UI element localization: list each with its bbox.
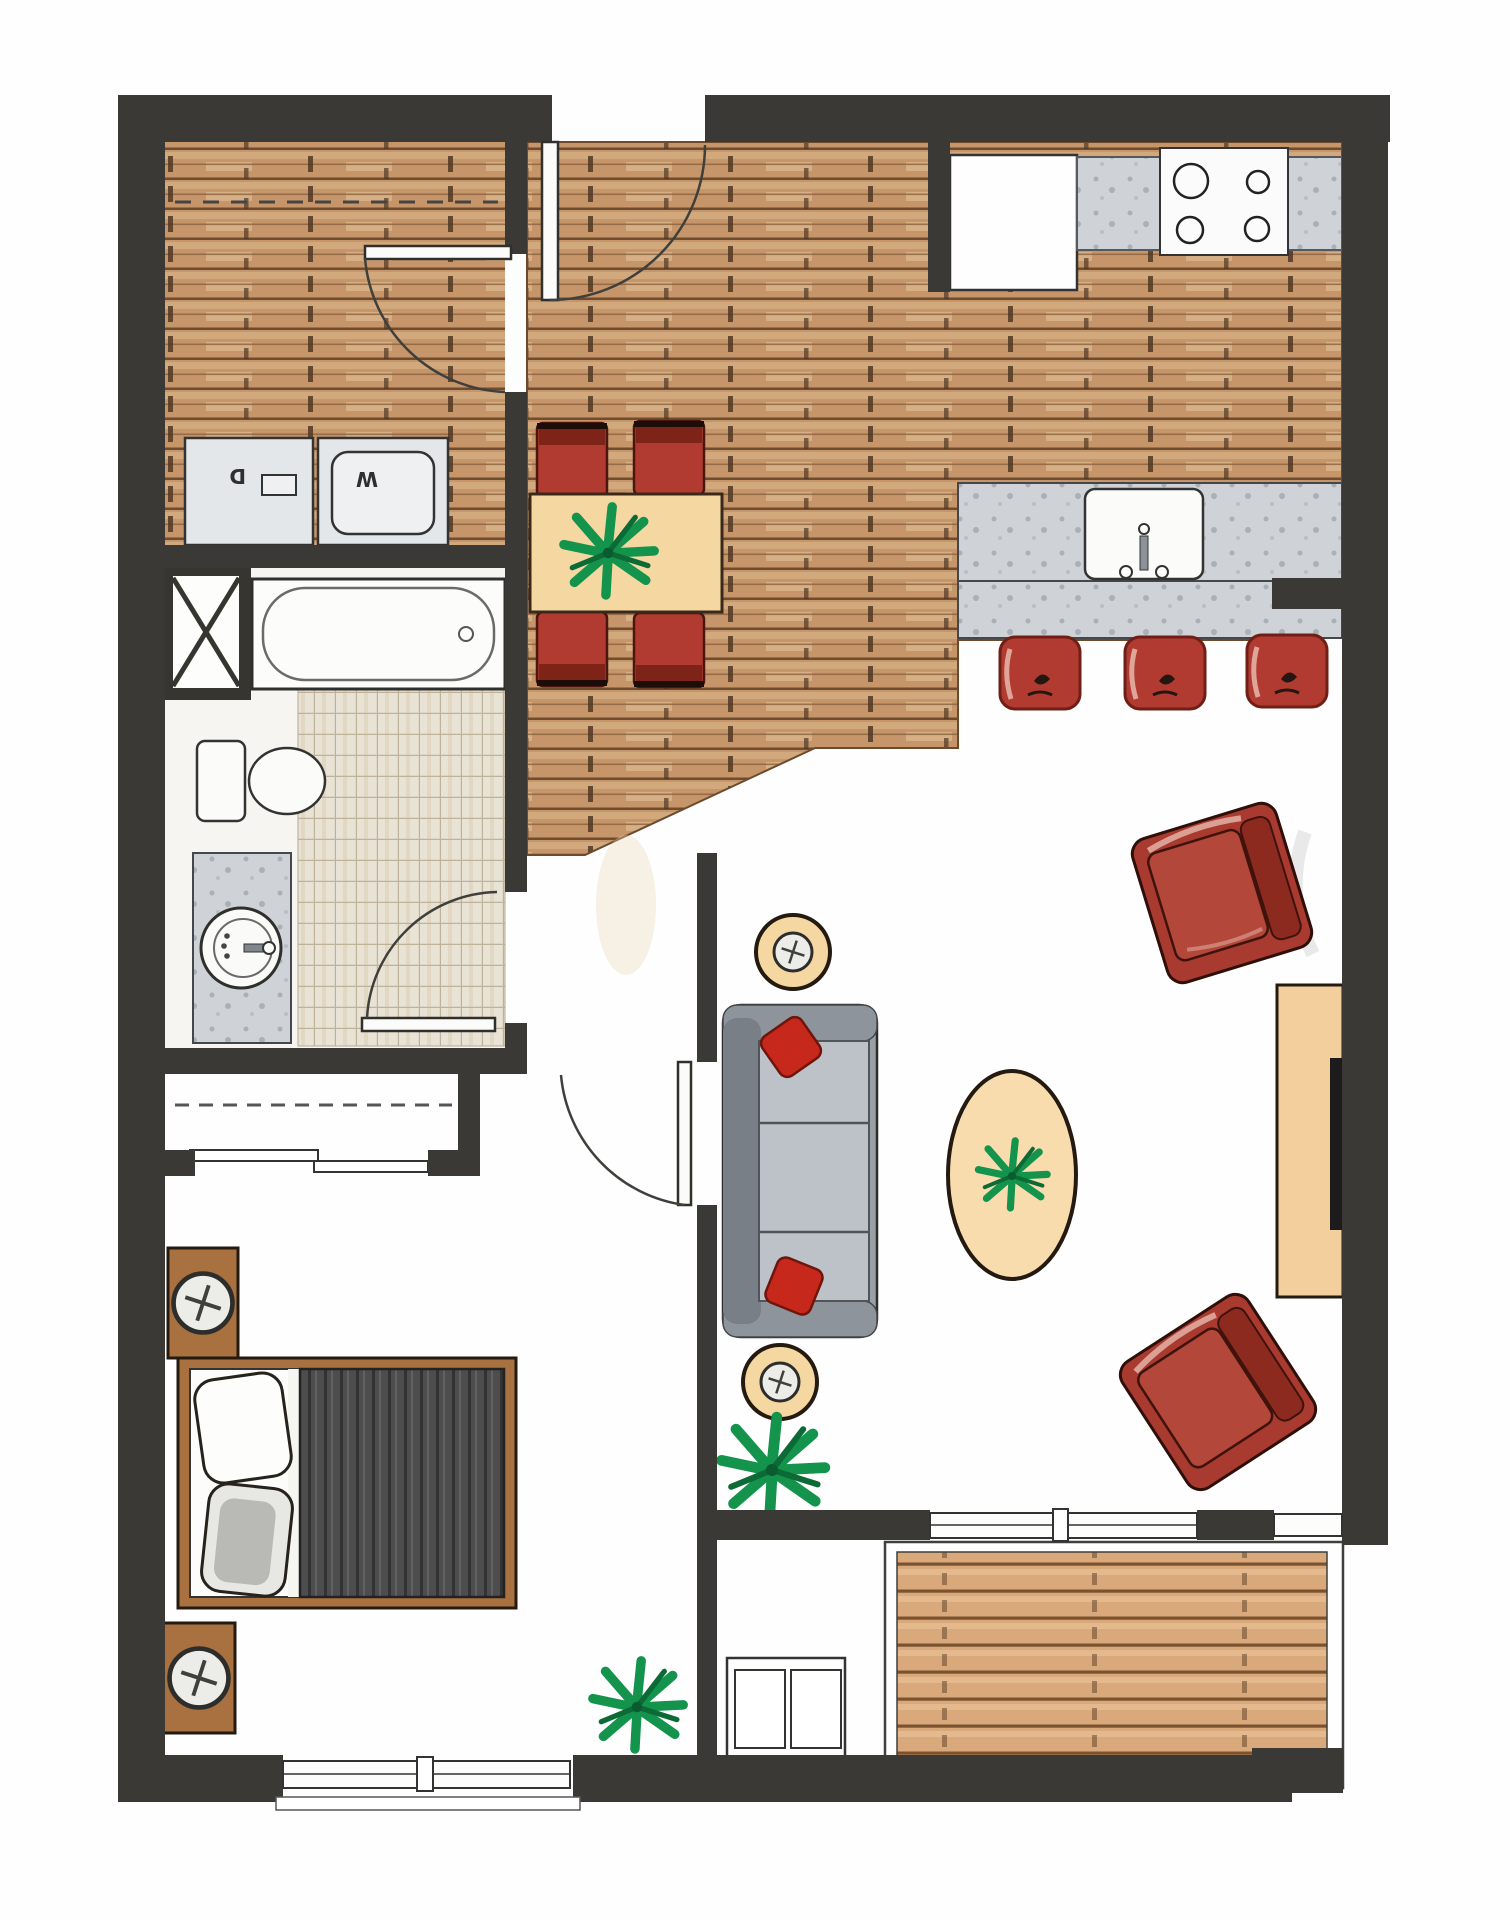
end-table: [756, 915, 830, 989]
counter-right: [1287, 157, 1342, 250]
wall-living-divider-upper: [697, 853, 717, 1062]
wall-living-bottom: [697, 1510, 930, 1540]
wall-bottom-left: [118, 1755, 283, 1802]
bathtub: [252, 579, 505, 689]
floor-plant: [722, 1417, 825, 1518]
slider-handle: [1053, 1509, 1068, 1541]
sofa: [723, 1005, 877, 1337]
wall-top-right: [705, 95, 1390, 142]
wall-top-left: [118, 95, 552, 142]
bathroom-door-leaf: [362, 1018, 495, 1031]
dryer: D: [185, 438, 313, 545]
bedroom: [163, 1248, 683, 1749]
bedroom-door-leaf: [678, 1062, 691, 1205]
cabinet-door: [735, 1670, 785, 1748]
wall-left: [118, 95, 165, 1802]
bedroom-door-swing-arc: [561, 1075, 685, 1205]
patio-deck: [897, 1552, 1327, 1776]
window-mullion: [417, 1757, 433, 1791]
wall-living-divider-lower: [697, 1205, 717, 1755]
armchair: [1128, 799, 1315, 986]
dining-chair: [537, 612, 607, 686]
bathroom-tile-floor: [298, 688, 505, 1046]
wall-bottom-right: [573, 1755, 1292, 1802]
washer: W: [318, 438, 448, 545]
table-lamp: [774, 933, 812, 971]
kitchen-island: [958, 483, 1342, 638]
dining-chair: [634, 613, 704, 687]
bathroom-vanity: [193, 853, 291, 1043]
sofa-back: [723, 1018, 761, 1324]
laundry-door-leaf: [365, 246, 511, 259]
stove: [1160, 148, 1288, 255]
rug-plant: [978, 1141, 1047, 1208]
tv-console: [1277, 985, 1343, 1297]
dining-table-plant: [564, 507, 654, 595]
wall-laundry-bottom: [165, 545, 505, 568]
patio-sliding-door: [930, 1509, 1342, 1541]
bedroom-window: [276, 1757, 580, 1810]
floor-plant: [593, 1661, 683, 1749]
floor-plan-drawing: D W: [0, 0, 1510, 1920]
pencil-shading: [596, 835, 656, 975]
pillow: [200, 1482, 295, 1598]
wall-closet-right: [458, 1072, 480, 1156]
bar-stool: [1125, 637, 1205, 709]
bar-stool: [1000, 637, 1080, 709]
wall-fridge-stub: [928, 142, 950, 292]
island-sink: [1085, 489, 1203, 579]
wall-closet-stub-right: [428, 1150, 480, 1176]
sidelight-window: [1274, 1514, 1342, 1536]
floor-plan: D W: [0, 0, 1510, 1920]
wall-right: [1342, 95, 1388, 1545]
wall-patio-corner: [1252, 1748, 1343, 1793]
table-lamp: [170, 1649, 229, 1708]
faucet: [1140, 536, 1148, 570]
armchair: [1114, 1288, 1321, 1495]
wall-laundry-right: [505, 142, 527, 254]
closet-sliding-door-right: [314, 1161, 428, 1172]
utility-cabinet: [727, 1658, 845, 1758]
dining-chair: [537, 423, 607, 497]
wall-bathroom-bottom: [165, 1048, 527, 1074]
refrigerator: [950, 155, 1077, 290]
tv: [1330, 1058, 1343, 1230]
counter-left: [1077, 157, 1162, 250]
bedroom-closet: [175, 1105, 452, 1172]
bar-stools: [1000, 635, 1327, 709]
linen-closet: [167, 570, 245, 694]
sofa-seat: [759, 1041, 869, 1301]
dryer-label: D: [229, 464, 246, 488]
pillow: [192, 1370, 294, 1485]
wall-closet-stub-left: [165, 1150, 195, 1176]
wall-bathroom-right: [505, 392, 527, 892]
table-lamp: [174, 1274, 233, 1333]
closet-sliding-door-left: [190, 1150, 318, 1161]
table-lamp: [761, 1363, 799, 1401]
dining-chair: [634, 421, 704, 495]
bar-stool: [1247, 635, 1327, 707]
window-sill: [276, 1797, 580, 1810]
wall-kitchen-stub: [1272, 578, 1342, 609]
wall-slider-right: [1197, 1510, 1274, 1540]
washer-label: W: [356, 467, 378, 491]
bedroom-door: [561, 1062, 691, 1205]
front-door-leaf: [542, 142, 558, 300]
cabinet-door: [791, 1670, 841, 1748]
duvet: [300, 1369, 504, 1597]
end-table: [743, 1345, 817, 1419]
